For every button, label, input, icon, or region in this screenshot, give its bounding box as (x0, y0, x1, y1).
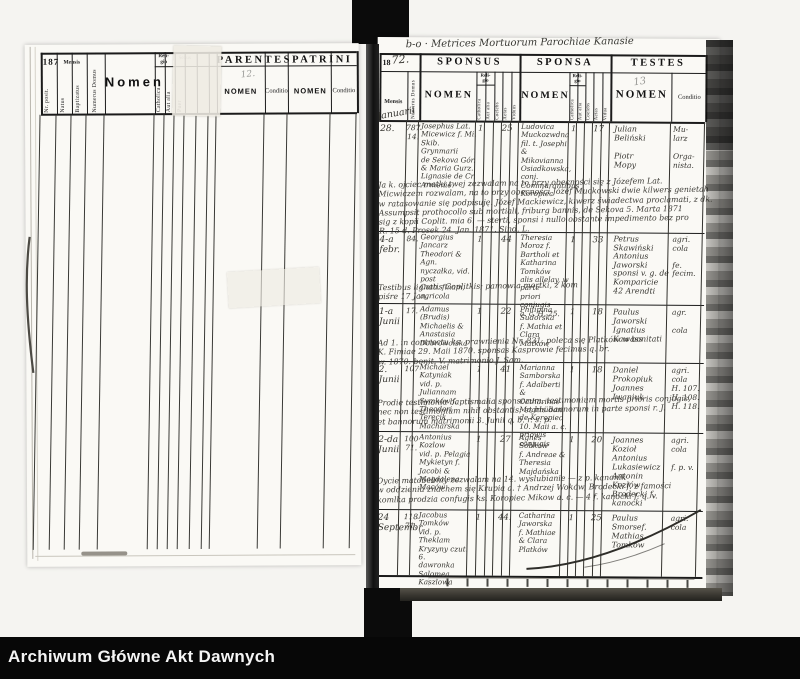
sponsus-aetas-cell: 25 (500, 124, 514, 134)
domus-cell: 787 14. (406, 123, 420, 141)
tape-strip (172, 45, 221, 116)
sponsus-catholica-cell: 1 (475, 307, 484, 316)
mensis-cell: 28. (380, 124, 407, 134)
sponsa-catholica-cell: 1 (568, 307, 577, 316)
sponsus-aetas-cell: 44. (498, 513, 512, 523)
left-parentes-header: PARENTES (217, 55, 288, 66)
marginal-note: Testibus lignatis Coplitkis; pamowia mor… (378, 280, 588, 302)
domus-cell: 17. (405, 306, 419, 315)
register-row: 2-da Junii 100 71. Antonius Kozlow vid. … (375, 431, 719, 511)
testes-conditio-label: Conditio (673, 94, 705, 101)
mensis-cell: 2. Junii (379, 365, 406, 385)
sponsa-aetas-cell: 33 (591, 235, 604, 245)
domus-cell: 100 71. (404, 434, 418, 452)
sponsus-nomen-label: NOMEN (421, 89, 476, 100)
left-patrini-header: PATRINI (288, 54, 357, 65)
binding-edge-top-dark (706, 40, 733, 150)
marginal-note: Prodie testimonia baptismalia sponsorum,… (377, 393, 715, 426)
testes-header: TESTES (611, 57, 706, 69)
testes-conditio-cell: agri. cola f. p. v. (671, 436, 703, 472)
sponsa-nomen-label: NOMEN (521, 90, 569, 101)
sponsus-catholica-cell: 1 (476, 124, 485, 133)
archival-scan-canvas: 187 Mensis Nr. posit. Natus Baptizatus N… (0, 0, 800, 679)
sponsa-catholica-cell: 1 (567, 435, 576, 444)
sponsa-religio-label: Reli- gio (569, 74, 585, 85)
gutter-shadow (366, 44, 379, 592)
testes-conditio-cell: agri. cola fe. fecim. (672, 236, 704, 279)
sponsa-aetas-cell: 18 (591, 307, 604, 317)
pencil-page-number-left: 12. (240, 69, 255, 81)
sponsus-catholica-cell: 1 (475, 365, 484, 374)
ink-flourish-stroke (524, 503, 704, 576)
domus-cell: 118 71. (404, 512, 418, 530)
testes-name-cell: Petrus Skawiński Antonius Jaworski spons… (613, 235, 671, 296)
testes-name-cell: Julian Beliński Piotr Mopy (614, 124, 672, 169)
sponsus-catholica-cell: 1 (474, 435, 483, 444)
sponsa-catholica-cell: 1 (569, 124, 578, 133)
left-nomen-label: Nomen (105, 74, 155, 89)
sponsa-catholica-cell: 1 (568, 235, 577, 244)
right-mensis-label: Mensis (379, 99, 407, 105)
left-table-grid (25, 43, 362, 567)
left-patrini-conditio-label: Conditio (331, 87, 357, 94)
tape-patch (227, 267, 321, 308)
left-col-baptizatus: Baptizatus (75, 68, 84, 113)
page-stack-ticks (428, 577, 694, 588)
sponsa-catholica-cell: 1 (568, 365, 577, 374)
right-page: b-o · Metrices Mortuorum Parochiae Kanas… (374, 37, 719, 597)
left-page: 187 Mensis Nr. posit. Natus Baptizatus N… (25, 43, 362, 567)
sponsus-catholica-cell: 1 (474, 513, 483, 522)
sponsus-col-viduus: Viduus (512, 87, 521, 120)
domus-cell: 84. (405, 234, 419, 243)
left-page-bottom-smudge (81, 551, 127, 555)
register-row: 1-a Junii 17. Adamus (Brudis) Michaelis … (376, 303, 720, 363)
archive-caption-bar: Archiwum Główne Akt Dawnych (0, 637, 800, 679)
sponsus-header: SPONSUS (420, 56, 520, 68)
marginal-note: Ja k. ojciec matki twej zezwalam na to p… (378, 175, 717, 236)
left-parentes-nomen-label: NOMEN (219, 87, 263, 96)
sponsa-col-vidua: Vidua (603, 87, 612, 120)
left-col-natus: Natus (60, 68, 69, 113)
sponsus-aetas-cell: 41 (499, 365, 513, 375)
sponsa-header: SPONSA (520, 57, 611, 69)
sponsus-religio-label: Reli- gio (476, 74, 494, 85)
left-col-numerus-domus: Numerus Domus (92, 60, 101, 112)
mensis-cell: 1-a Junii (379, 307, 406, 327)
mensis-cell: 2-da Junii (378, 435, 405, 455)
right-year-handwritten: 72. (391, 52, 409, 66)
right-col-numerus-domus: Numerus Domus (410, 75, 419, 119)
sponsa-aetas-cell: 17 (592, 124, 605, 134)
sponsa-name-cell: Agnes Sobków f. Andreae & Theresia Majda… (519, 434, 568, 476)
domus-cell: 107 (405, 364, 419, 373)
book-bottom-edge (400, 588, 722, 601)
sponsus-col-aetas: Aetas (503, 87, 512, 120)
sponsa-aetas-cell: 20 (590, 435, 603, 445)
testes-conditio-cell: Mu- larz Orga- nista. (673, 125, 705, 170)
right-year-printed: 18 (383, 58, 391, 67)
left-religio-label: Reli- gio (153, 54, 175, 65)
left-col-catholica: Catholica (156, 69, 165, 112)
sponsus-aetas-cell: 22 (499, 307, 513, 317)
sponsa-col-aetas: Aetas (594, 87, 603, 120)
register-row: 28. 787 14. Josephus Lat. Micewicz f. Mi… (377, 120, 722, 233)
sponsus-catholica-cell: 1 (475, 235, 484, 244)
sponsa-aetas-cell: 18 (591, 365, 604, 375)
sponsus-aetas-cell: 44 (499, 235, 513, 245)
sponsus-col-aut-alia: Aut alia (486, 87, 495, 120)
left-parentes-conditio-label: Conditio (265, 88, 288, 95)
register-row: 2. Junii 107 Michael Katyniak vid. p. Ju… (375, 361, 719, 433)
testes-nomen-label: NOMEN (612, 88, 671, 100)
register-row: 4-a febr. 84. Georgius Jancarz Theodori … (376, 231, 720, 305)
left-mensis-label: Mensis (55, 60, 89, 66)
sponsus-col-catholica: Catholica (477, 87, 486, 120)
left-col-nr-posit: Nr. posit. (44, 68, 53, 113)
sponsus-aetas-cell: 27 (498, 435, 512, 445)
testes-conditio-cell: agr. cola (672, 308, 704, 335)
archive-name: Archiwum Główne Akt Dawnych (8, 647, 275, 667)
marginal-note: Oycie matobebniy zezwalam na 14. wyslubi… (377, 471, 715, 504)
left-patrini-nomen-label: NOMEN (290, 86, 331, 95)
sponsus-name-cell: Jacobus Tomków vid. p. Theklam Kryzyny c… (418, 511, 474, 587)
mensis-cell: 24 Septembr. (378, 513, 405, 533)
pencil-page-number-right: 13 (633, 76, 647, 89)
mensis-cell: 4-a febr. (379, 235, 406, 255)
